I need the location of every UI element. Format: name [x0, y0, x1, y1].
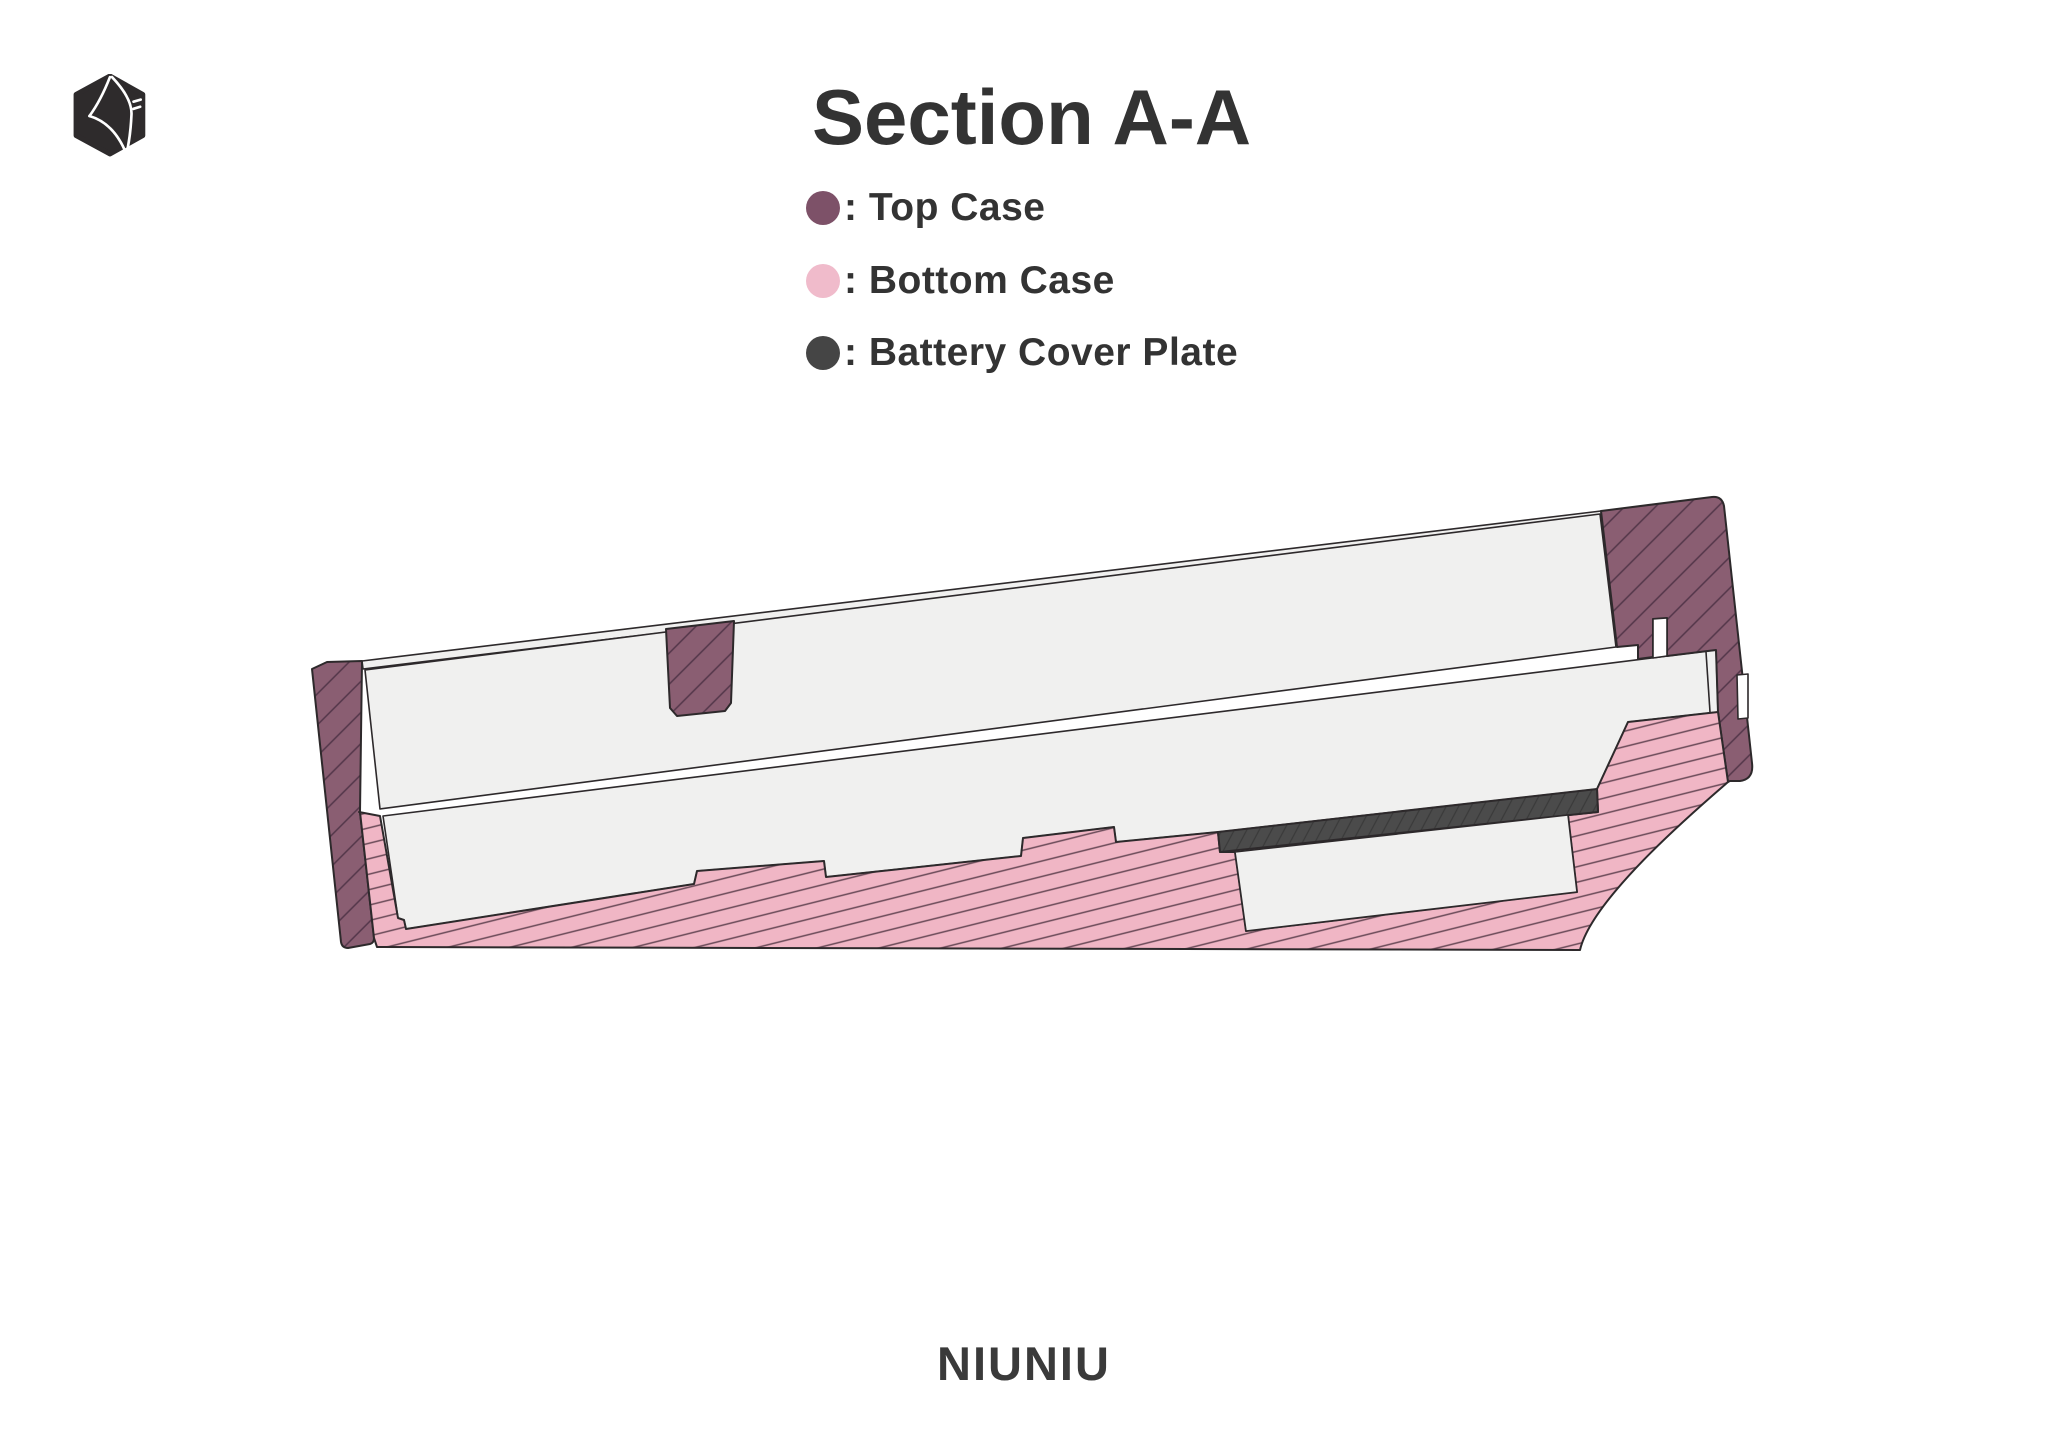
brand-wordmark: NIUNIU	[0, 1336, 2048, 1391]
top-case-left-wall	[312, 661, 374, 948]
right-edge-slot	[1737, 674, 1748, 719]
right-block-slot	[1653, 618, 1667, 658]
section-drawing	[0, 0, 2048, 1448]
page: Section A-A : Top Case : Bottom Case : B…	[0, 0, 2048, 1448]
top-case-rib	[666, 621, 734, 716]
